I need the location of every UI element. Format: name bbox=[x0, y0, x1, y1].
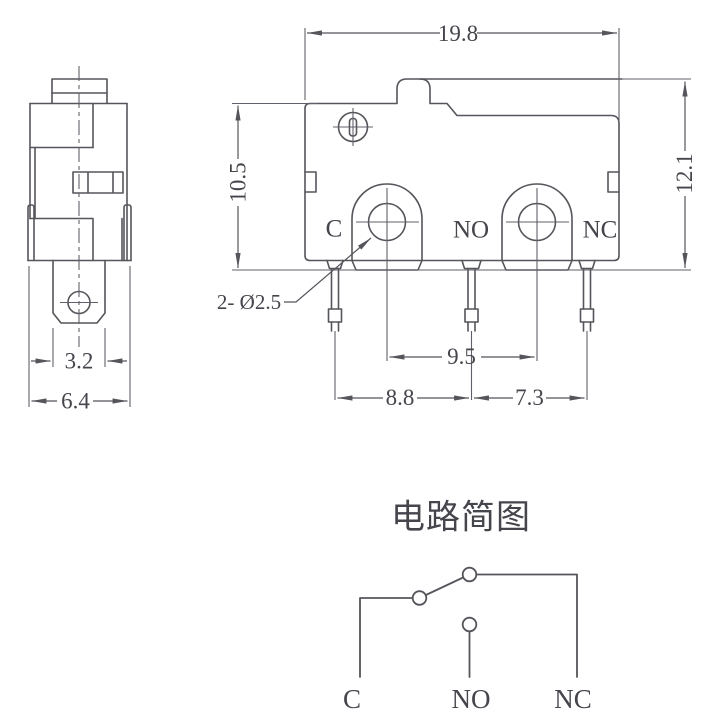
side-notch bbox=[73, 172, 123, 193]
side-view: 3.2 6.4 bbox=[28, 66, 131, 414]
front-left-notch bbox=[305, 172, 316, 192]
terminal-pin-no bbox=[465, 269, 478, 332]
circuit-label-c: C bbox=[343, 684, 361, 714]
front-screw-crosshair bbox=[333, 108, 373, 146]
terminal-pin-nc bbox=[581, 269, 594, 332]
microswitch-drawing: 3.2 6.4 bbox=[0, 0, 720, 721]
dim-19-8-label: 19.8 bbox=[438, 21, 478, 46]
circuit-contact-common bbox=[413, 591, 427, 605]
dim-8-8-label: 8.8 bbox=[386, 385, 415, 410]
dim-10-5-label: 10.5 bbox=[226, 162, 251, 202]
circuit-label-nc: NC bbox=[554, 684, 592, 714]
terminal-label-nc: NC bbox=[583, 217, 618, 244]
technical-drawing-page: 3.2 6.4 bbox=[0, 0, 720, 721]
terminal-pin-c bbox=[329, 269, 342, 332]
front-view: 19.8 10.5 12.1 9.5 8.8 7.3 2- Ø2.5 C NO … bbox=[217, 21, 697, 410]
foot-pin-nc bbox=[579, 261, 595, 269]
side-lower-block bbox=[30, 219, 93, 261]
circuit-diagram: 电路简图 C NO NC bbox=[343, 499, 592, 715]
dim-7-3-label: 7.3 bbox=[515, 385, 544, 410]
side-left-ear bbox=[28, 205, 34, 261]
circuit-nc-leg bbox=[476, 575, 577, 678]
circuit-label-no: NO bbox=[452, 684, 491, 714]
dim-9-5-label: 9.5 bbox=[447, 344, 476, 369]
terminal-label-c: C bbox=[326, 216, 343, 243]
terminal-label-no: NO bbox=[453, 217, 489, 244]
dim-3-2-label: 3.2 bbox=[65, 349, 94, 374]
circuit-contact-nc bbox=[463, 568, 477, 582]
circuit-common-leg bbox=[360, 598, 412, 677]
dim-12-1-label: 12.1 bbox=[672, 153, 697, 193]
circuit-contact-no bbox=[463, 618, 477, 632]
hole-callout-label: 2- Ø2.5 bbox=[217, 290, 281, 314]
foot-pin-no bbox=[462, 261, 481, 269]
front-right-notch bbox=[608, 172, 619, 192]
circuit-title: 电路简图 bbox=[391, 499, 531, 537]
circuit-switch-blade bbox=[420, 575, 470, 599]
dim-6-4-label: 6.4 bbox=[61, 389, 90, 414]
